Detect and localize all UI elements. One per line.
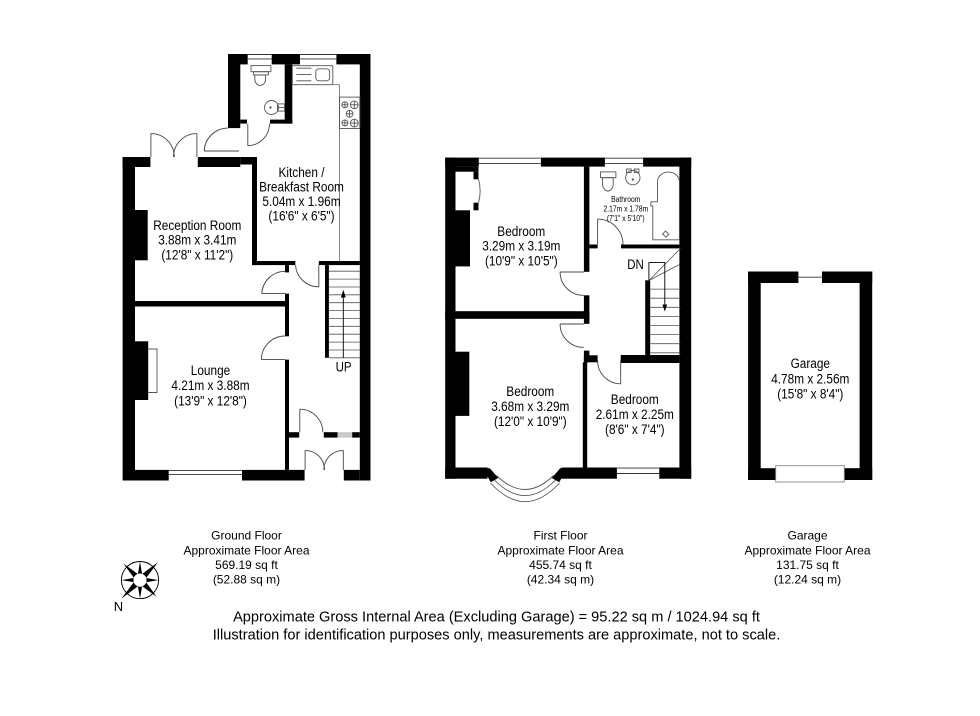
- svg-text:(12.24 sq m): (12.24 sq m): [774, 573, 841, 587]
- svg-text:First Floor: First Floor: [534, 529, 588, 543]
- svg-text:(13'9" x 12'8"): (13'9" x 12'8"): [174, 392, 247, 408]
- svg-text:Ground Floor: Ground Floor: [211, 529, 282, 543]
- svg-text:Approximate Floor Area: Approximate Floor Area: [744, 543, 870, 557]
- svg-text:Reception Room: Reception Room: [153, 217, 241, 233]
- svg-text:Garage: Garage: [787, 529, 827, 543]
- svg-text:Illustration for identificatio: Illustration for identification purposes…: [213, 628, 781, 644]
- svg-text:DN: DN: [627, 256, 644, 272]
- svg-text:3.88m x 3.41m: 3.88m x 3.41m: [158, 232, 236, 248]
- svg-text:Approximate Gross Internal Are: Approximate Gross Internal Area (Excludi…: [233, 609, 760, 625]
- svg-text:131.75 sq ft: 131.75 sq ft: [776, 558, 839, 572]
- svg-text:(15'8" x 8'4"): (15'8" x 8'4"): [777, 385, 843, 401]
- svg-text:4.78m x 2.56m: 4.78m x 2.56m: [771, 371, 849, 387]
- svg-text:Lounge: Lounge: [191, 362, 230, 378]
- svg-text:Bathroom: Bathroom: [611, 194, 640, 204]
- svg-text:(12'8" x 11'2"): (12'8" x 11'2"): [161, 246, 233, 262]
- svg-text:569.19 sq ft: 569.19 sq ft: [215, 558, 278, 572]
- svg-text:455.74 sq ft: 455.74 sq ft: [529, 558, 592, 572]
- svg-text:N: N: [114, 599, 123, 614]
- svg-text:Bedroom: Bedroom: [497, 223, 545, 239]
- svg-text:(12'0" x 10'9"): (12'0" x 10'9"): [494, 413, 567, 429]
- svg-text:(52.88 sq m): (52.88 sq m): [213, 573, 280, 587]
- svg-text:2.61m x 2.25m: 2.61m x 2.25m: [596, 406, 674, 422]
- svg-text:3.68m x 3.29m: 3.68m x 3.29m: [491, 398, 569, 414]
- svg-text:(10'9" x 10'5"): (10'9" x 10'5"): [485, 252, 558, 268]
- svg-text:Approximate Floor Area: Approximate Floor Area: [183, 543, 309, 557]
- svg-text:4.21m x 3.88m: 4.21m x 3.88m: [171, 377, 249, 393]
- svg-text:3.29m x 3.19m: 3.29m x 3.19m: [482, 238, 560, 254]
- svg-text:Bedroom: Bedroom: [611, 391, 659, 407]
- svg-text:Bedroom: Bedroom: [506, 383, 554, 399]
- svg-text:(42.34 sq m): (42.34 sq m): [527, 573, 594, 587]
- svg-text:(8'6" x 7'4"): (8'6" x 7'4"): [605, 421, 665, 437]
- svg-text:Approximate Floor Area: Approximate Floor Area: [497, 543, 623, 557]
- svg-text:(16'6" x 6'5"): (16'6" x 6'5"): [268, 207, 334, 223]
- svg-text:(7'1" x 5'10"): (7'1" x 5'10"): [607, 213, 645, 223]
- svg-text:Garage: Garage: [791, 355, 830, 371]
- svg-text:2.17m x 1.78m: 2.17m x 1.78m: [603, 204, 648, 214]
- svg-text:UP: UP: [336, 359, 352, 375]
